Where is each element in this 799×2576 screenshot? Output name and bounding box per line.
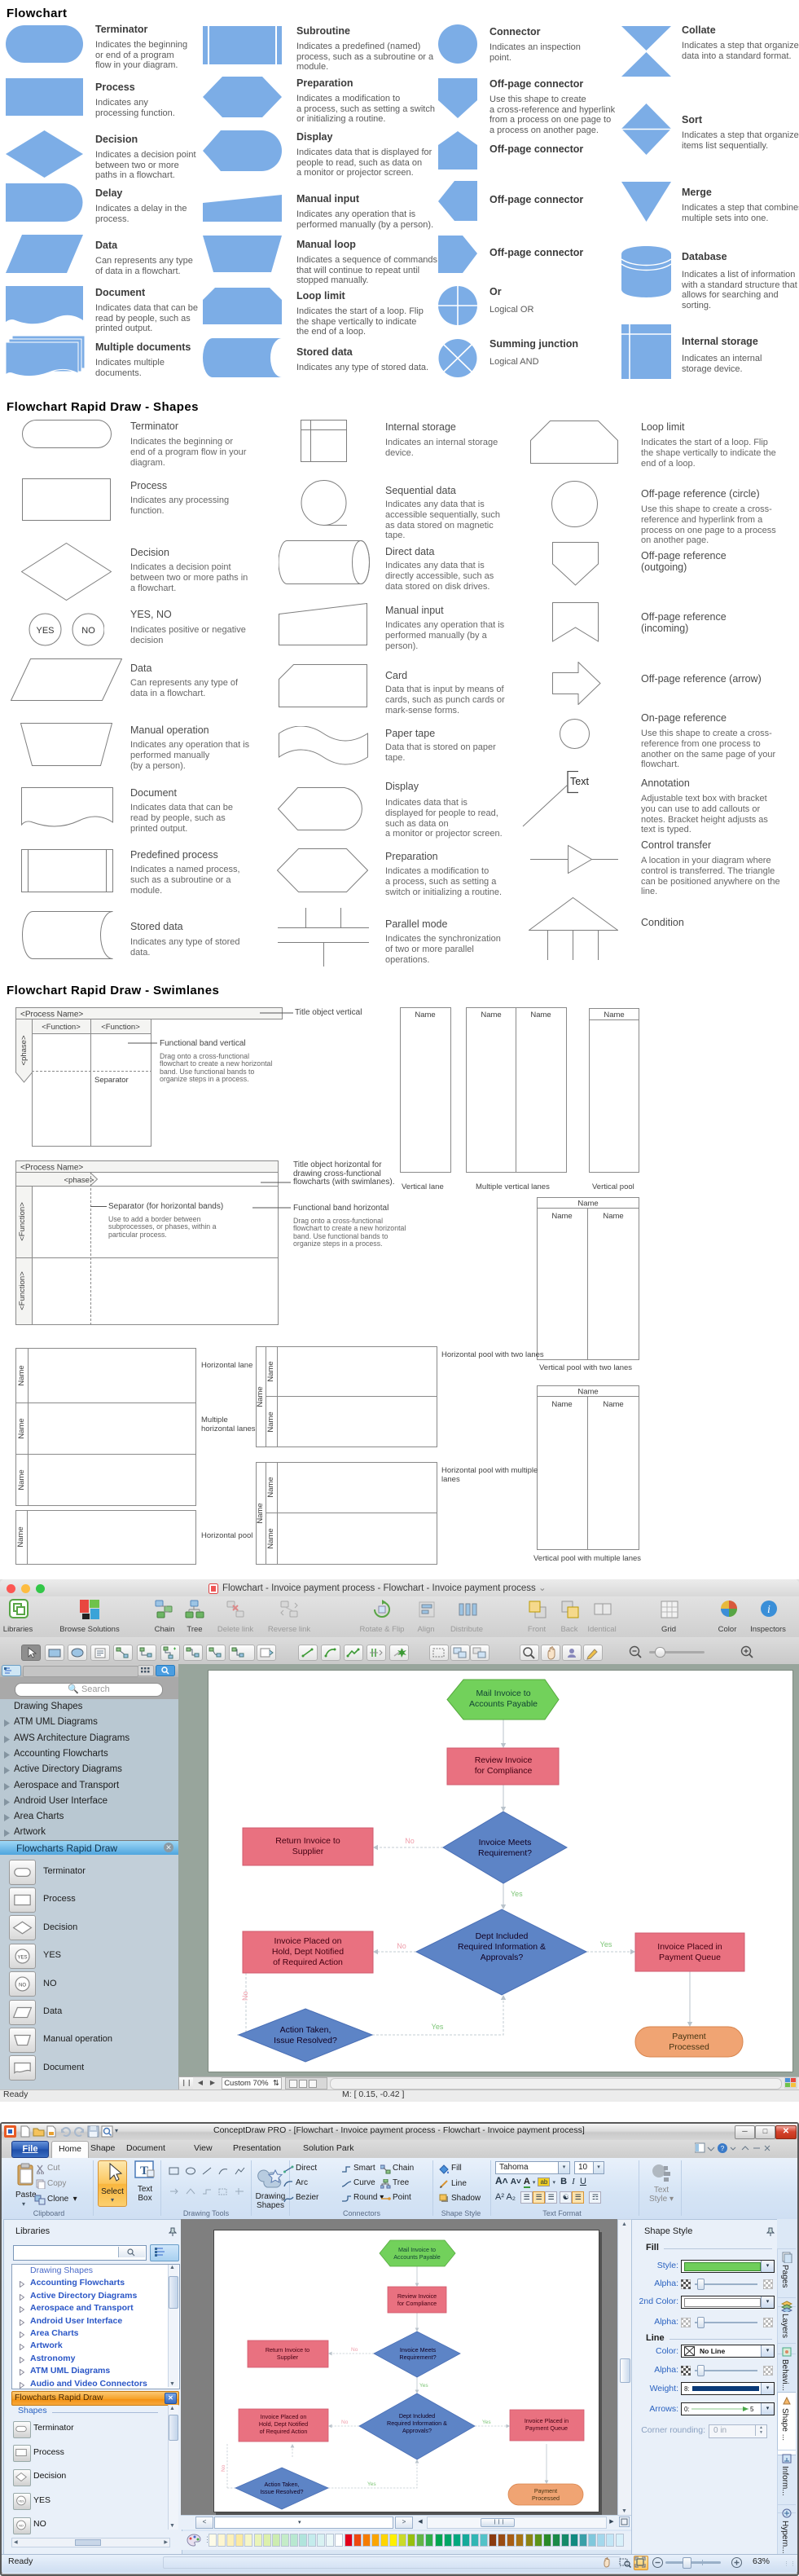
svg-text:Invoice Placed on: Invoice Placed on [274,1936,342,1946]
svg-text:<Function>: <Function> [101,1023,140,1032]
svg-text:No: No [351,2347,358,2353]
svg-text:Requirement?: Requirement? [478,1848,532,1858]
svg-text:Review Invoice: Review Invoice [397,2292,437,2300]
svg-text:5: 5 [750,2406,754,2413]
svg-text:Name: Name [603,1212,623,1221]
svg-text:Yes: Yes [419,2383,428,2389]
svg-text:Name: Name [256,1503,265,1523]
svg-text:Payment: Payment [534,2487,557,2495]
svg-text:NO: NO [19,1984,26,1988]
svg-text:NO: NO [19,2524,24,2527]
svg-text:Return Invoice to: Return Invoice to [275,1836,340,1846]
svg-text:Requirement?: Requirement? [399,2354,436,2361]
svg-text:Name: Name [17,1469,26,1490]
svg-text:for Compliance: for Compliance [397,2300,437,2307]
svg-text:Name: Name [481,1011,501,1019]
svg-text:Invoice Meets: Invoice Meets [400,2346,437,2354]
svg-text:Action Taken,: Action Taken, [264,2481,299,2488]
svg-text:of Required Action: of Required Action [260,2428,308,2435]
svg-text:Name: Name [604,1011,624,1019]
svg-text:Payment Queue: Payment Queue [659,1953,721,1962]
svg-text:Invoice Meets: Invoice Meets [479,1838,532,1847]
svg-text:Yes: Yes [482,2420,491,2425]
svg-text:<phase>: <phase> [20,1035,29,1065]
svg-text:0:: 0: [684,2406,690,2413]
svg-text:Dept Included: Dept Included [399,2412,435,2420]
svg-text:Invoice Placed on: Invoice Placed on [261,2413,307,2420]
svg-text:Hold, Dept Notified: Hold, Dept Notified [259,2420,308,2428]
svg-text:YES: YES [36,626,54,636]
svg-text:Payment Queue: Payment Queue [525,2424,568,2432]
svg-text:No: No [341,2420,349,2425]
svg-text:Mail Invoice to: Mail Invoice to [398,2246,436,2253]
svg-text:Yes: Yes [367,2481,376,2487]
svg-text:Name: Name [577,1200,598,1209]
svg-text:YES: YES [18,2499,24,2503]
svg-text:for Compliance: for Compliance [475,1766,533,1776]
svg-text:?: ? [721,2145,725,2152]
svg-text:Name: Name [266,1477,275,1497]
svg-text:Supplier: Supplier [277,2354,299,2361]
svg-text:Issue Resolved?: Issue Resolved? [260,2488,303,2495]
svg-text:Processed: Processed [532,2495,560,2502]
svg-text:<Function>: <Function> [42,1023,81,1032]
svg-text:Name: Name [415,1011,435,1019]
svg-text:Name: Name [256,1386,265,1407]
svg-text:Name: Name [266,1361,275,1381]
svg-text:Required Information &: Required Information & [387,2420,447,2427]
svg-text:Invoice Placed in: Invoice Placed in [657,1942,722,1952]
svg-text:Name: Name [17,1365,26,1385]
svg-text:Text: Text [570,776,589,787]
svg-text:Action Taken,: Action Taken, [280,2025,331,2035]
svg-text:Yes: Yes [600,1940,612,1949]
svg-text:Accounts Payable: Accounts Payable [393,2253,441,2261]
svg-text:<Process Name>: <Process Name> [20,1011,83,1019]
svg-text:Accounts Payable: Accounts Payable [469,1699,538,1709]
svg-text:NO: NO [81,626,95,636]
svg-text:<Function>: <Function> [18,1271,27,1310]
svg-text:No: No [221,2464,226,2472]
svg-text:Review Invoice: Review Invoice [475,1755,533,1765]
svg-text:Name: Name [266,1528,275,1548]
svg-text:Issue Resolved?: Issue Resolved? [274,2036,337,2045]
svg-text:Name: Name [530,1011,551,1019]
svg-text:Dept Included: Dept Included [476,1931,529,1941]
svg-text:i: i [767,1604,770,1616]
svg-text:Return Invoice to: Return Invoice to [266,2346,310,2354]
svg-text:Payment: Payment [672,2032,706,2041]
svg-text:Supplier: Supplier [292,1847,324,1856]
svg-text:Processed: Processed [669,2042,709,2052]
svg-text:Hold, Dept Notified: Hold, Dept Notified [272,1947,344,1957]
svg-text:<phase>: <phase> [64,1176,94,1185]
svg-text:Required Information &: Required Information & [458,1942,546,1952]
svg-text:Name: Name [603,1400,623,1409]
svg-text:Yes: Yes [511,1890,523,1898]
svg-text:No: No [405,1837,415,1845]
svg-text:Name: Name [551,1212,572,1221]
svg-text:Approvals?: Approvals? [402,2427,432,2434]
svg-text:No: No [397,1942,406,1950]
svg-text:Name: Name [16,1526,25,1547]
svg-text:No: No [241,1991,249,2001]
svg-text:Yes: Yes [432,2023,444,2031]
svg-text:<Process Name>: <Process Name> [20,1164,83,1173]
svg-text:Separator: Separator [94,1076,129,1085]
svg-text:YES: YES [17,1956,27,1961]
svg-text:Name: Name [17,1418,26,1438]
svg-text:Name: Name [551,1400,572,1409]
svg-text:Name: Name [577,1388,598,1397]
svg-text:Approvals?: Approvals? [481,1953,524,1962]
svg-text:Mail Invoice to: Mail Invoice to [476,1689,530,1698]
svg-text:Invoice Placed in: Invoice Placed in [525,2417,569,2424]
svg-text:<Function>: <Function> [18,1202,27,1241]
svg-text:of Required Action: of Required Action [273,1957,343,1967]
svg-text:Name: Name [266,1411,275,1432]
